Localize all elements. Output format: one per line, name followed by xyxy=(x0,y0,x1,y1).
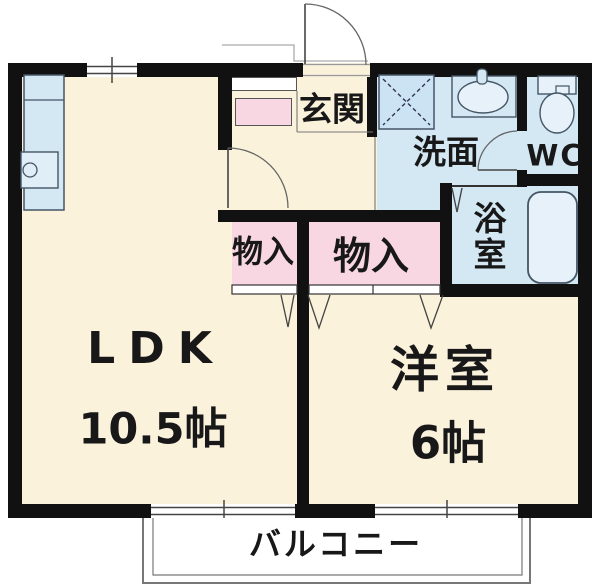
bath-folding-door-icon xyxy=(452,188,462,212)
plan-linework xyxy=(0,0,600,587)
closet-door-mark-icon xyxy=(232,285,443,328)
western-room-name-label: 洋室 xyxy=(390,346,500,395)
floor-plan: 玄関 洗面 WC 浴室 物入 物入 LDK 10.5帖 洋室 6帖 バルコニー xyxy=(0,0,600,587)
balcony-label: バルコニー xyxy=(249,528,423,560)
washroom-door-arc-icon xyxy=(478,131,517,170)
bathroom-label: 浴室 xyxy=(471,201,504,273)
vanity-sink-icon xyxy=(452,69,516,117)
ldk-size-label: 10.5帖 xyxy=(78,409,227,452)
ldk-name-label: LDK xyxy=(87,327,225,371)
kitchen-sink-icon xyxy=(21,152,58,188)
bathtub-icon xyxy=(528,192,577,283)
closet-right-label: 物入 xyxy=(333,237,409,275)
closet-left-label: 物入 xyxy=(232,238,294,269)
washroom-label: 洗面 xyxy=(413,136,479,169)
porch-outline xyxy=(222,45,368,61)
toilet-icon xyxy=(538,76,576,133)
ldk-door-arc-icon xyxy=(228,148,288,208)
toilet-label: WC xyxy=(526,142,583,171)
kitchen-counter-icon xyxy=(21,75,64,210)
western-room-size-label: 6帖 xyxy=(410,421,486,466)
entrance-threshold xyxy=(303,63,370,77)
entrance-label: 玄関 xyxy=(299,93,365,126)
entrance-door-arc-icon xyxy=(305,4,366,65)
washer-pan-icon xyxy=(379,75,434,129)
